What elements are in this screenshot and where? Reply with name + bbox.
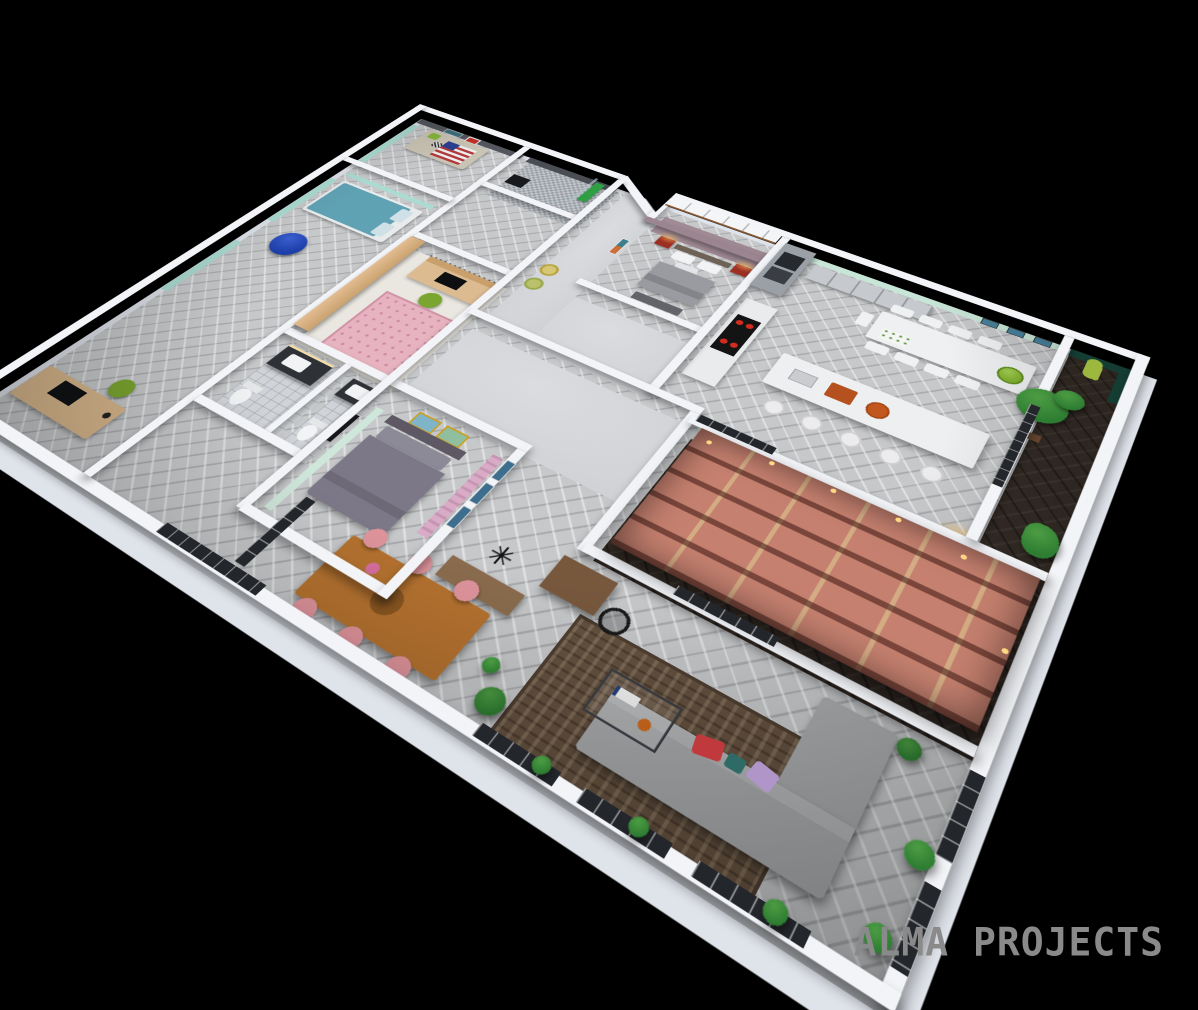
scene-3d: ✳ xyxy=(0,0,1198,1010)
floor-plan: ✳ xyxy=(0,117,1145,1010)
watermark-logo: ALMA PROJECTS xyxy=(854,919,1164,965)
render-canvas: ✳ xyxy=(0,0,1198,1010)
